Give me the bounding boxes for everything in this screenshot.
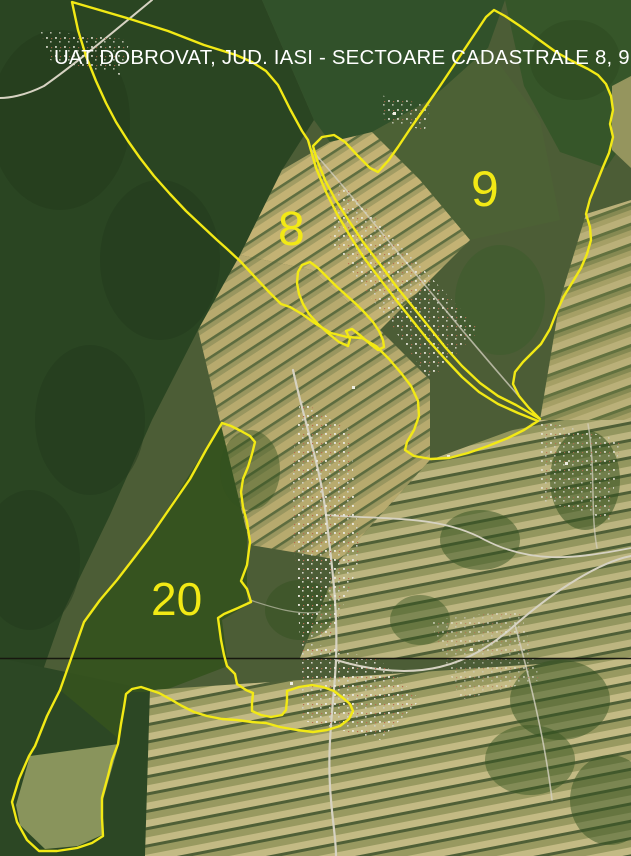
cadastral-map: UAT DOBROVAT, JUD. IASI - SECTOARE CADAS… — [0, 0, 631, 856]
sector-9-label: 9 — [471, 164, 499, 214]
satellite-basemap — [0, 0, 631, 856]
sector-20-label: 20 — [151, 576, 202, 622]
sector-8-label: 8 — [278, 206, 305, 254]
map-title: UAT DOBROVAT, JUD. IASI - SECTOARE CADAS… — [54, 47, 631, 70]
